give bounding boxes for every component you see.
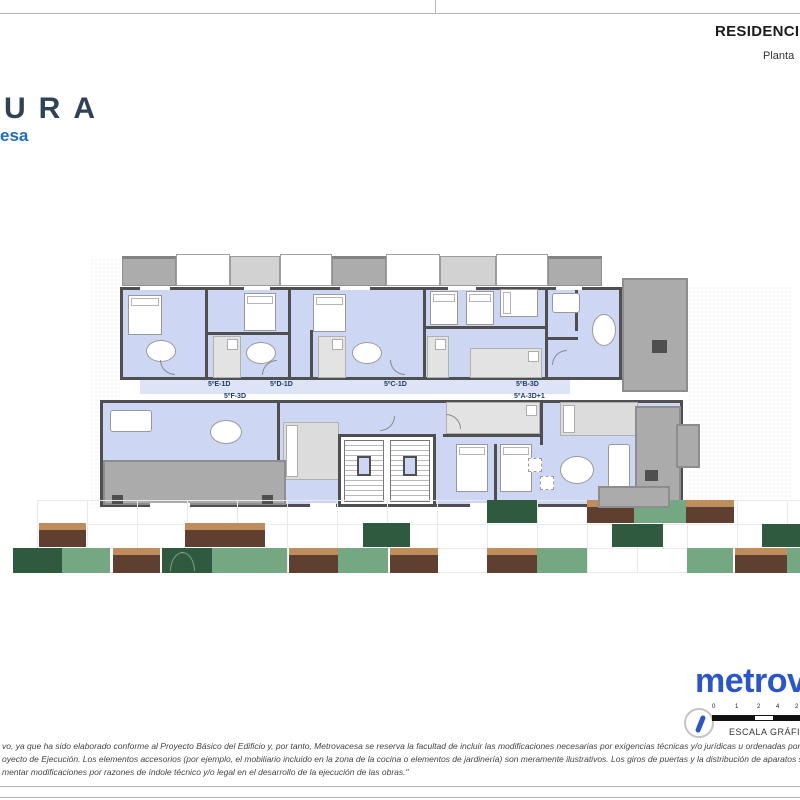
bed bbox=[500, 289, 538, 317]
sofa bbox=[110, 410, 152, 432]
terrace-lower-left bbox=[103, 460, 286, 505]
scale-caption: ESCALA GRÁFICA bbox=[729, 727, 800, 737]
window bbox=[244, 286, 270, 290]
wall bbox=[494, 444, 497, 504]
wall bbox=[545, 337, 578, 340]
sofa bbox=[608, 444, 630, 488]
project-logo-wordmark: URA bbox=[4, 92, 108, 126]
leaf-motif-icon bbox=[170, 551, 196, 571]
planter-brown bbox=[113, 548, 160, 573]
ground-texture-right bbox=[688, 286, 792, 502]
window bbox=[340, 286, 370, 290]
bathroom bbox=[318, 336, 346, 378]
planter-tan-strip bbox=[487, 548, 537, 555]
bathroom bbox=[427, 336, 449, 378]
planter-tan-strip bbox=[390, 548, 438, 555]
dining-table bbox=[146, 340, 176, 362]
balcony bbox=[386, 254, 440, 286]
planter-mid bbox=[787, 548, 800, 573]
bed bbox=[244, 293, 276, 331]
balcony bbox=[332, 256, 386, 286]
wall bbox=[443, 434, 543, 437]
armchair bbox=[540, 476, 554, 490]
compass-needle bbox=[695, 715, 706, 734]
terrace-upper-right bbox=[622, 278, 688, 392]
dining-table bbox=[210, 420, 242, 444]
residencial-title: RESIDENCIAL bbox=[715, 23, 800, 40]
unit-label: 5ºA-3D+1 bbox=[514, 393, 545, 400]
bed bbox=[466, 291, 494, 325]
balcony bbox=[496, 254, 548, 286]
scale-tick: 0 bbox=[712, 704, 715, 710]
frame-top-divider bbox=[435, 0, 436, 13]
metrovacesa-logo: metrova bbox=[695, 662, 800, 701]
wall bbox=[540, 400, 543, 445]
dining-table bbox=[352, 342, 382, 364]
wall bbox=[207, 332, 288, 335]
balcony bbox=[280, 254, 332, 286]
scale-segment bbox=[712, 715, 754, 721]
disclaimer-line: oyecto de Ejecución. Los elementos acces… bbox=[2, 754, 800, 764]
bed bbox=[456, 444, 488, 492]
wall bbox=[288, 287, 291, 380]
planter-dark bbox=[487, 500, 537, 523]
disclaimer-line: mentar modificaciones por razones de índ… bbox=[2, 767, 409, 777]
planter-dark bbox=[13, 548, 62, 573]
frame-bottom-line-2 bbox=[0, 797, 800, 798]
scale-tick: 2 bbox=[757, 704, 760, 710]
planter-mid bbox=[338, 548, 388, 573]
window bbox=[556, 286, 582, 290]
unit-label: 5ºC-1D bbox=[384, 381, 407, 388]
scale-tick: 1 bbox=[735, 704, 738, 710]
wall bbox=[423, 287, 426, 380]
sofa bbox=[552, 293, 580, 313]
plan-sheet: RESIDENCIAL Planta URA esa bbox=[0, 0, 800, 800]
dining-table bbox=[560, 456, 594, 484]
bathroom bbox=[470, 348, 542, 378]
planter-brown bbox=[735, 548, 787, 573]
bed bbox=[128, 295, 162, 335]
project-logo-sub: esa bbox=[0, 126, 28, 146]
planter-mid bbox=[212, 548, 287, 573]
planter-brown bbox=[390, 548, 438, 573]
unit-label: 5ºD-1D bbox=[270, 381, 293, 388]
balcony bbox=[176, 254, 230, 286]
bathroom bbox=[446, 402, 540, 434]
planter-brown bbox=[39, 523, 86, 547]
window bbox=[140, 286, 170, 290]
planter-brown bbox=[686, 500, 734, 523]
planter-mid bbox=[687, 548, 733, 573]
frame-bottom-line-1 bbox=[0, 786, 800, 787]
balcony bbox=[230, 256, 280, 286]
planter-mid bbox=[62, 548, 110, 573]
planter-brown bbox=[487, 548, 537, 573]
north-arrow-icon bbox=[684, 708, 714, 738]
kitchen bbox=[560, 402, 638, 436]
bed bbox=[313, 294, 346, 332]
planter-tan-strip bbox=[686, 500, 734, 507]
planter-dark bbox=[363, 523, 410, 547]
planter-dark bbox=[612, 524, 663, 547]
armchair bbox=[528, 458, 542, 472]
wall bbox=[545, 287, 548, 380]
frame-top-line bbox=[0, 13, 800, 14]
wall-nub bbox=[652, 340, 667, 353]
bed bbox=[430, 291, 458, 325]
balcony-strip bbox=[140, 380, 570, 394]
scale-tick: 2 bbox=[795, 704, 798, 710]
planter-tan-strip bbox=[289, 548, 338, 555]
planter-brown bbox=[289, 548, 338, 573]
kitchen bbox=[283, 422, 339, 480]
plan-subtitle: Planta bbox=[763, 50, 794, 62]
planter-dark bbox=[762, 524, 800, 547]
scale-segment bbox=[774, 715, 800, 721]
terrace-lower-right-ext bbox=[676, 424, 700, 468]
unit-label: 5ºB-3D bbox=[516, 381, 539, 388]
planter-tan-strip bbox=[735, 548, 787, 555]
unit-label: 5ºF-3D bbox=[224, 393, 246, 400]
balcony bbox=[122, 256, 176, 286]
scale-bar: 01242 bbox=[712, 704, 800, 724]
scale-tick: 4 bbox=[776, 704, 779, 710]
balcony bbox=[440, 256, 496, 286]
planter-mid bbox=[537, 548, 587, 573]
elevator bbox=[357, 456, 371, 476]
planter-tan-strip bbox=[185, 523, 265, 530]
elevator bbox=[403, 456, 417, 476]
window bbox=[448, 286, 476, 290]
dining-table bbox=[592, 314, 616, 346]
planter-tan-strip bbox=[39, 523, 86, 530]
balcony bbox=[548, 256, 602, 286]
wall bbox=[425, 326, 545, 329]
planter-dark bbox=[162, 548, 212, 573]
wall-nub bbox=[645, 470, 658, 481]
terrace-step bbox=[598, 486, 670, 508]
disclaimer-line: vo, ya que ha sido elaborado conforme al… bbox=[2, 741, 800, 751]
wall bbox=[310, 330, 313, 380]
planter-tan-strip bbox=[113, 548, 160, 555]
bathroom bbox=[213, 336, 241, 378]
planter-brown bbox=[185, 523, 265, 547]
unit-label: 5ºE-1D bbox=[208, 381, 230, 388]
scale-segment bbox=[754, 715, 774, 721]
